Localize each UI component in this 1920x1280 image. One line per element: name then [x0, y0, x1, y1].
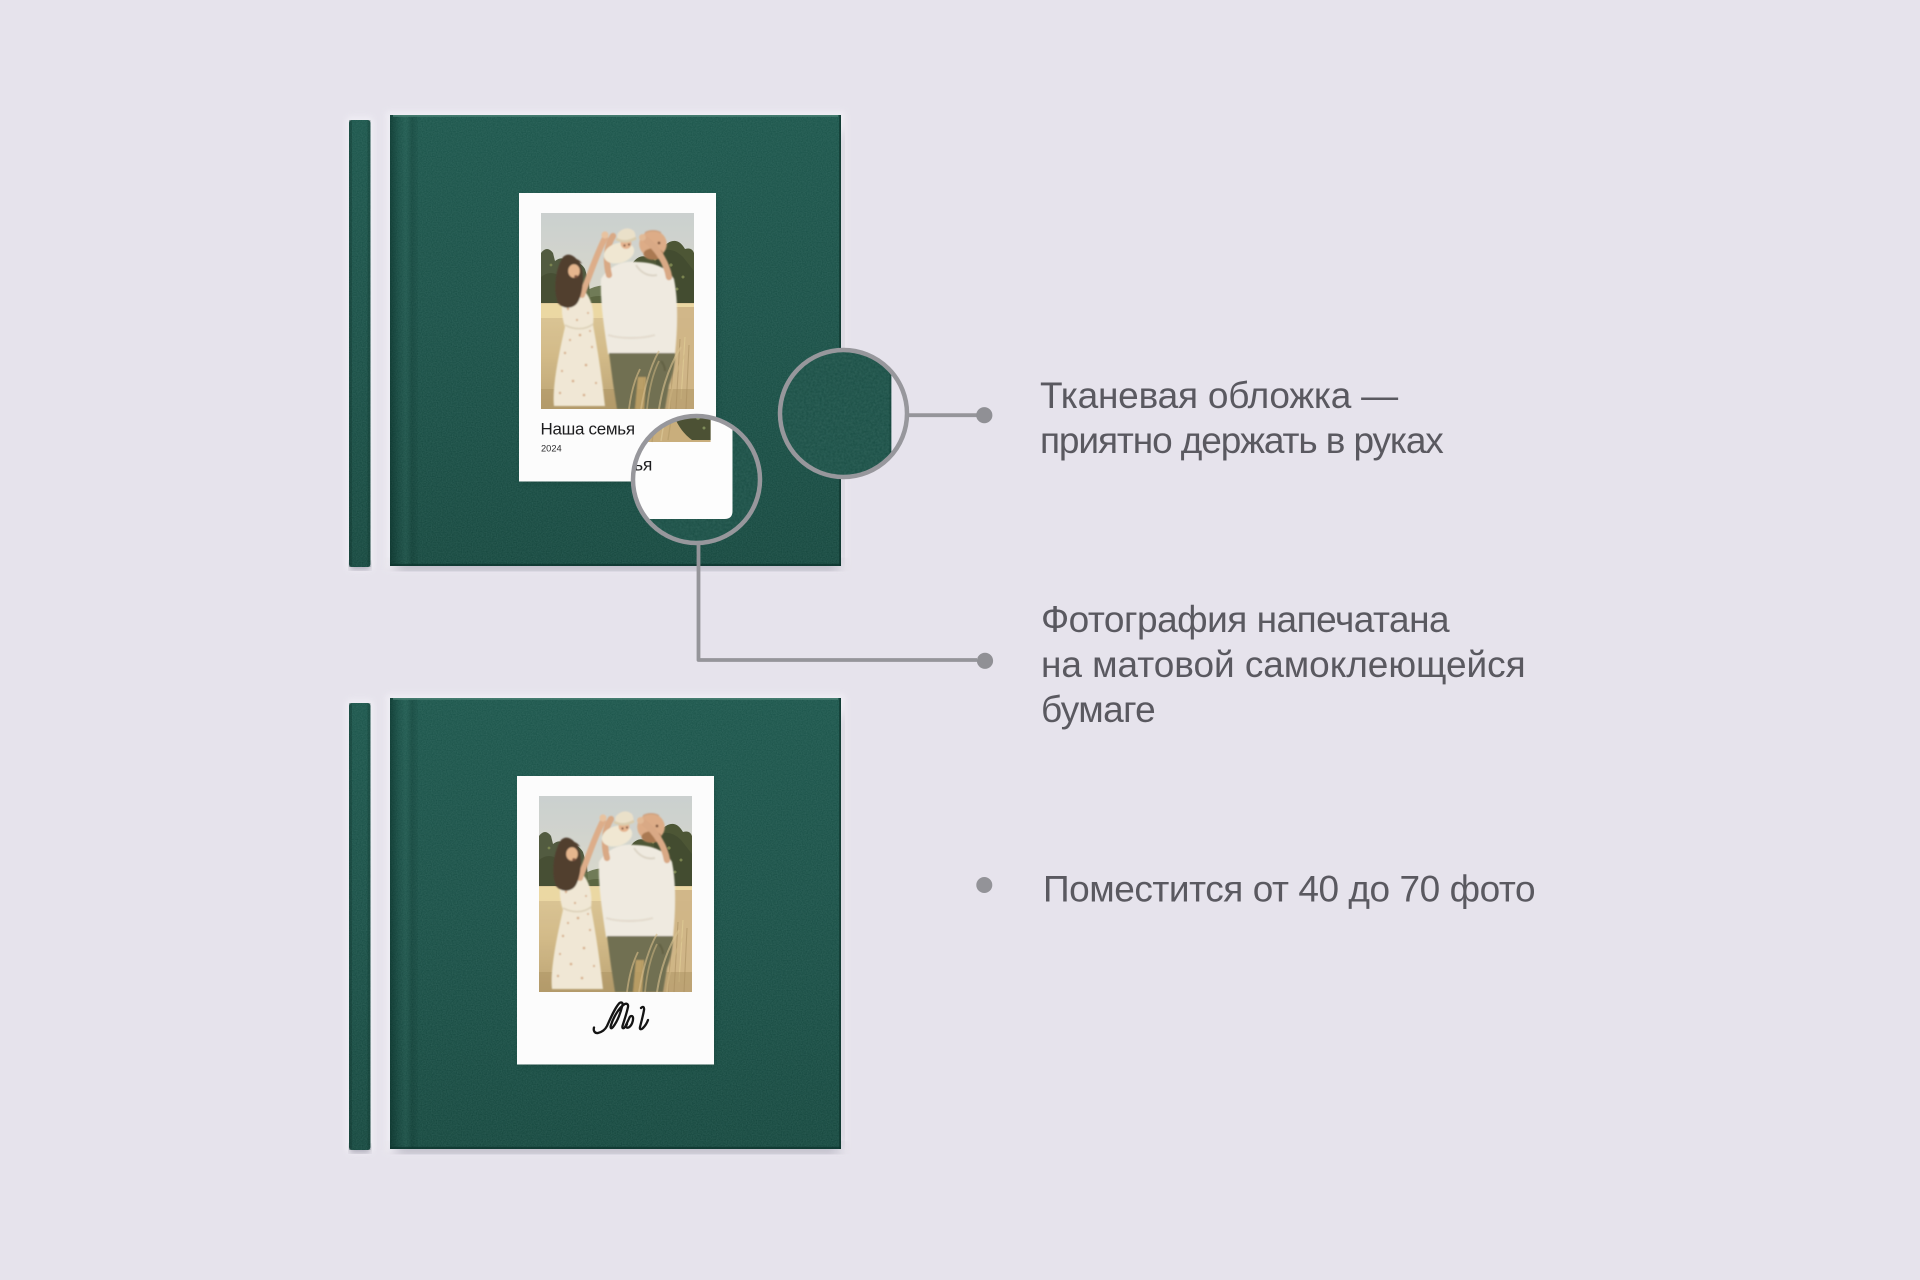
svg-text:Наша семья: Наша семья	[541, 420, 635, 439]
svg-text:на матовой самоклеющейся: на матовой самоклеющейся	[1041, 644, 1526, 685]
svg-text:приятно держать в руках: приятно держать в руках	[1040, 420, 1444, 461]
svg-text:бумаге: бумаге	[1041, 689, 1155, 730]
svg-text:Фотография напечатана: Фотография напечатана	[1041, 599, 1450, 640]
svg-text:2024: 2024	[541, 444, 562, 454]
svg-text:Тканевая обложка —: Тканевая обложка —	[1040, 375, 1398, 416]
svg-text:Поместится от 40 до 70 фото: Поместится от 40 до 70 фото	[1043, 869, 1535, 910]
